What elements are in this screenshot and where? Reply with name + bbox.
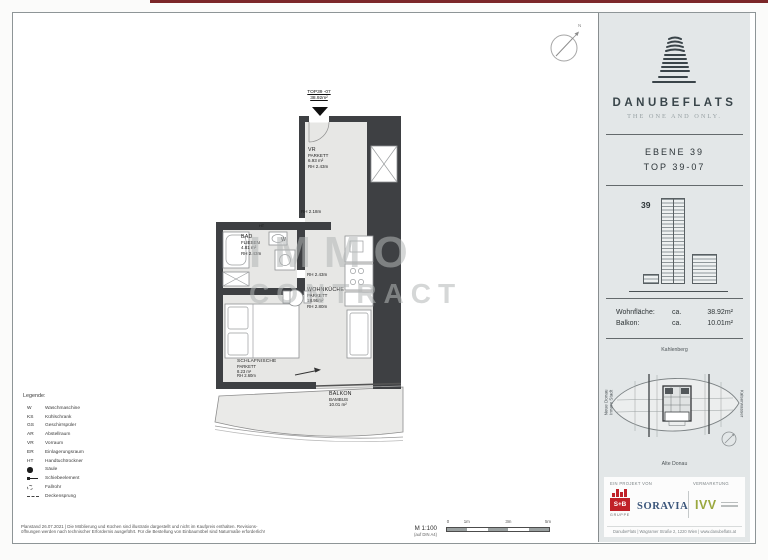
legend-item: GSGeschirrspüler: [23, 422, 143, 431]
divider: [688, 491, 689, 518]
compass-north-label: N: [578, 23, 581, 28]
siteplan-label-west: Neue Donau Innere Stadt: [604, 380, 615, 424]
ivv-logo-text-lines: [721, 502, 738, 509]
siteplan-label-north: Kahlenberg: [599, 347, 750, 353]
tower-graphic: [661, 198, 685, 284]
unit-entry-area: 38.92m²: [291, 96, 347, 102]
site-key-plan-drawing: [605, 357, 745, 453]
scale-paper-label: (auf DIN A4): [395, 532, 437, 537]
area-summary: Wohnfläche: ca. 38.92m² Balkon: ca. 10.0…: [616, 307, 733, 329]
scale-tick: 5m: [545, 519, 551, 524]
legend-title: Legende:: [23, 393, 143, 399]
legend-item: Schiebeelement: [23, 474, 143, 483]
soravia-logo: SORAVIA: [637, 501, 688, 512]
unit-entry-label: TOP39 -07 38.92m²: [291, 90, 347, 101]
contact-line: DanubeFlats | Wagramer Straße 2, 1220 Wi…: [607, 526, 742, 535]
scale-tick: 3m: [505, 519, 511, 524]
height-annotation-218: RH 2.18m: [301, 209, 321, 214]
legend-item: Säule: [23, 466, 143, 475]
height-annotation-243: RH 2.43m: [307, 272, 327, 277]
legend-item: Fallrohr: [23, 483, 143, 492]
legend-item: VRVorraum: [23, 439, 143, 448]
scale-bar: M 1:100 (auf DIN A4) 0 1m 3m 5m: [395, 519, 550, 539]
siteplan-label-east: Kaiserwasser: [740, 382, 745, 426]
top-red-accent-line: [150, 0, 768, 3]
area-row-wohnflaeche: Wohnfläche: ca. 38.92m²: [616, 307, 733, 318]
room-label-vr: VR PARKETT 6.93 m² RH 2.43m: [308, 148, 328, 169]
partner-logos-panel: EIN PROJEKT VON VERMARKTUNG S+B GRUPPE S…: [604, 477, 745, 537]
brand-tagline: THE ONE AND ONLY.: [599, 113, 750, 120]
danubeflats-logo-icon: [647, 35, 703, 87]
legend-item: KSKühlschrank: [23, 413, 143, 422]
floorplan: TOP39 -07 38.92m² VR PARKETT 6.93 m² RH …: [211, 86, 411, 461]
sb-gruppe-logo: S+B GRUPPE: [610, 489, 632, 517]
divider: [606, 298, 743, 299]
legend: Legende: WWaschmaschine KSKühlschrank GS…: [23, 393, 143, 501]
brand-name: DANUBEFLATS: [599, 97, 750, 109]
column-icon: [27, 467, 33, 473]
room-label-balkon: BALKON BAMBUS 10.01 m²: [329, 392, 352, 408]
floor-marker: 39: [641, 200, 650, 210]
unit-label: TOP 39-07: [599, 162, 750, 172]
marketing-heading: VERMARKTUNG: [693, 481, 729, 486]
scale-bar-graphic: [446, 527, 550, 532]
annotation-ht: HT: [259, 223, 264, 228]
legend-item: WWaschmaschine: [23, 404, 143, 413]
room-label-schlafnische: SCHLAFNISCHE PARKETT 8.23 m² RH 2.60m: [237, 360, 276, 379]
sliding-element-icon: [27, 478, 38, 479]
room-label-wohnkueche: WOHNKÜCHE PARKETT 18.95m² RH 2.80m: [307, 288, 344, 309]
sb-gruppe-logo-mark: S+B: [610, 498, 630, 511]
annotation-washing-machine: W: [281, 238, 286, 243]
area-row-balkon: Balkon: ca. 10.01m²: [616, 318, 733, 329]
low-rise-graphic: [692, 254, 717, 284]
divider: [606, 338, 743, 339]
scale-tick: 1m: [464, 519, 470, 524]
scale-label: M 1:100: [395, 525, 437, 532]
downpipe-icon: [27, 485, 33, 491]
divider: [606, 134, 743, 135]
legend-item: ARAbstellraum: [23, 430, 143, 439]
compass-icon: [546, 25, 590, 69]
title-block-sidebar: DANUBEFLATS THE ONE AND ONLY. EBENE 39 T…: [598, 13, 750, 542]
site-key-plan: Kahlenberg: [599, 345, 750, 475]
scale-tick: 0: [447, 519, 449, 524]
plan-disclaimer: Planstand 26.07.2021 | Die Möblierung un…: [21, 524, 331, 535]
sb-gruppe-logo-sub: GRUPPE: [610, 513, 630, 517]
level-label: EBENE 39: [599, 147, 750, 157]
sb-gruppe-logo-bars: [612, 489, 632, 497]
ceiling-step-icon: [27, 496, 39, 497]
siteplan-label-south: Alte Donau: [599, 461, 750, 467]
legend-item: EREinlagerungsraum: [23, 448, 143, 457]
disclaimer-line2: öffnungen werden nach technischer Erford…: [21, 529, 331, 534]
divider: [606, 185, 743, 186]
plan-sheet: N: [12, 12, 756, 544]
legend-item: HTHandtuchtrockner: [23, 457, 143, 466]
ground-line: [629, 291, 728, 292]
project-heading: EIN PROJEKT VON: [610, 481, 652, 486]
building-elevation: 39: [599, 192, 750, 296]
legend-item: Deckensprung: [23, 492, 143, 501]
room-label-bad: BAD FLIESEN 4.81 m² RH 2.43m: [241, 235, 261, 256]
annex-graphic: [643, 274, 659, 284]
ivv-logo: IVV: [695, 498, 717, 512]
